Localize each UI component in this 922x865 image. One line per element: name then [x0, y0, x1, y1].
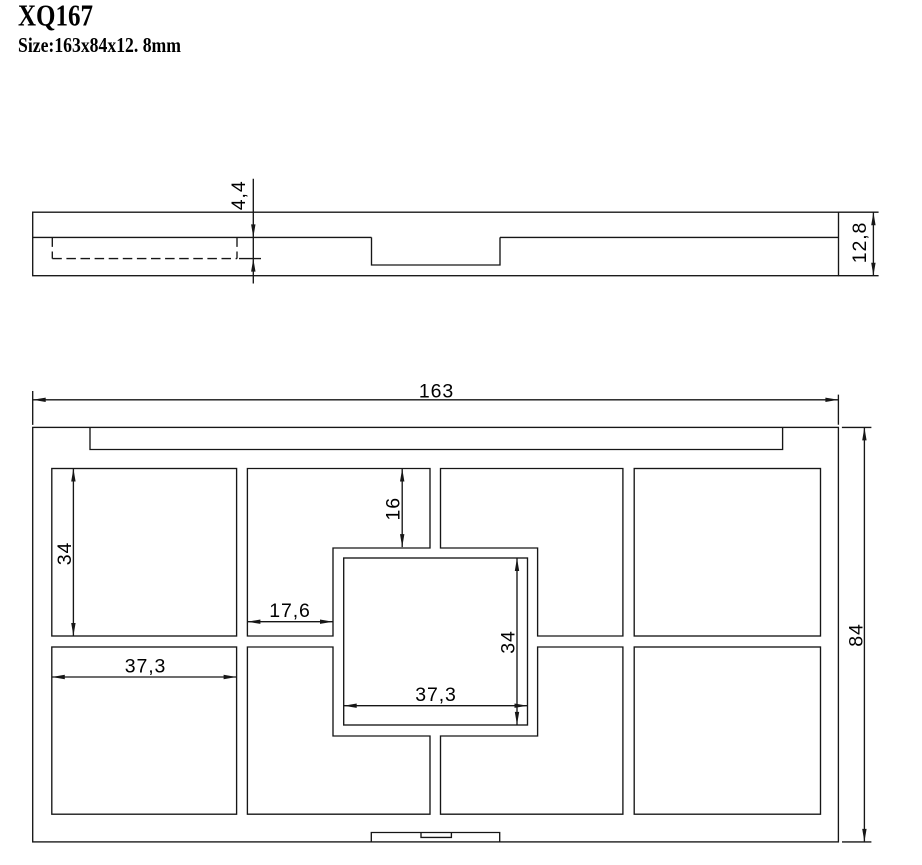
- svg-text:12,8: 12,8: [849, 222, 871, 264]
- svg-text:34: 34: [497, 630, 519, 654]
- svg-text:Size:163x84x12. 8mm: Size:163x84x12. 8mm: [18, 33, 181, 57]
- svg-text:163: 163: [419, 381, 454, 403]
- svg-text:37,3: 37,3: [125, 656, 167, 678]
- svg-text:37,3: 37,3: [415, 684, 457, 706]
- svg-text:34: 34: [54, 542, 76, 566]
- svg-text:XQ167: XQ167: [18, 0, 93, 33]
- svg-text:17,6: 17,6: [269, 600, 311, 622]
- svg-text:84: 84: [845, 623, 867, 647]
- svg-text:4,4: 4,4: [228, 180, 250, 210]
- svg-text:16: 16: [382, 497, 404, 521]
